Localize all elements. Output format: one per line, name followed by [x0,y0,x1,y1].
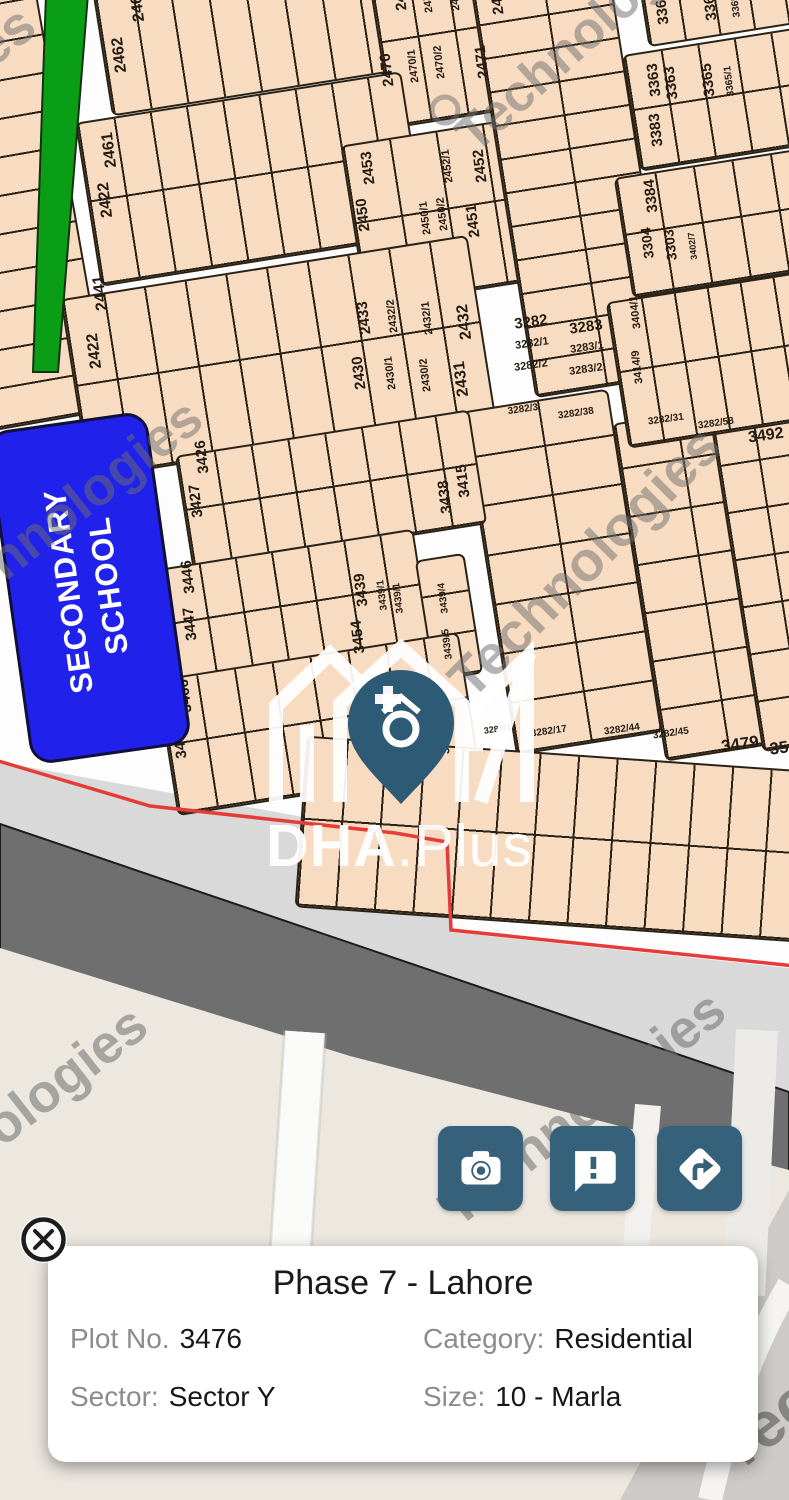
field-label: Size: [423,1381,485,1412]
map-canvas[interactable]: 24622462246124222441242224702470/12470/2… [0,0,789,1500]
close-button[interactable] [20,1216,67,1263]
field-value: 10 - Marla [495,1381,621,1412]
field-value: Residential [554,1323,693,1354]
card-field: Category:Residential [423,1323,736,1355]
card-field: Sector:Sector Y [70,1381,423,1413]
chat-exclaim-icon [567,1143,619,1195]
card-title: Phase 7 - Lahore [70,1264,736,1303]
field-value: Sector Y [169,1381,276,1412]
card-field: Size:10 - Marla [423,1381,736,1413]
plot-info-card: Phase 7 - Lahore Plot No.3476Category:Re… [48,1246,758,1462]
logo-wordmark: DHA.Plus [266,812,533,880]
field-label: Category: [423,1323,544,1354]
camera-icon [455,1143,507,1195]
feedback-button[interactable] [550,1126,635,1211]
field-label: Plot No. [70,1323,170,1354]
field-value: 3476 [180,1323,242,1354]
turn-right-icon [673,1142,727,1196]
green-strip [33,0,88,372]
camera-button[interactable] [438,1126,523,1211]
close-icon [20,1216,67,1263]
directions-button[interactable] [657,1126,742,1211]
card-field: Plot No.3476 [70,1323,423,1355]
field-label: Sector: [70,1381,159,1412]
school-label: SECONDARYSCHOOL [35,480,143,695]
card-fields: Plot No.3476Category:ResidentialSector:S… [70,1323,736,1413]
